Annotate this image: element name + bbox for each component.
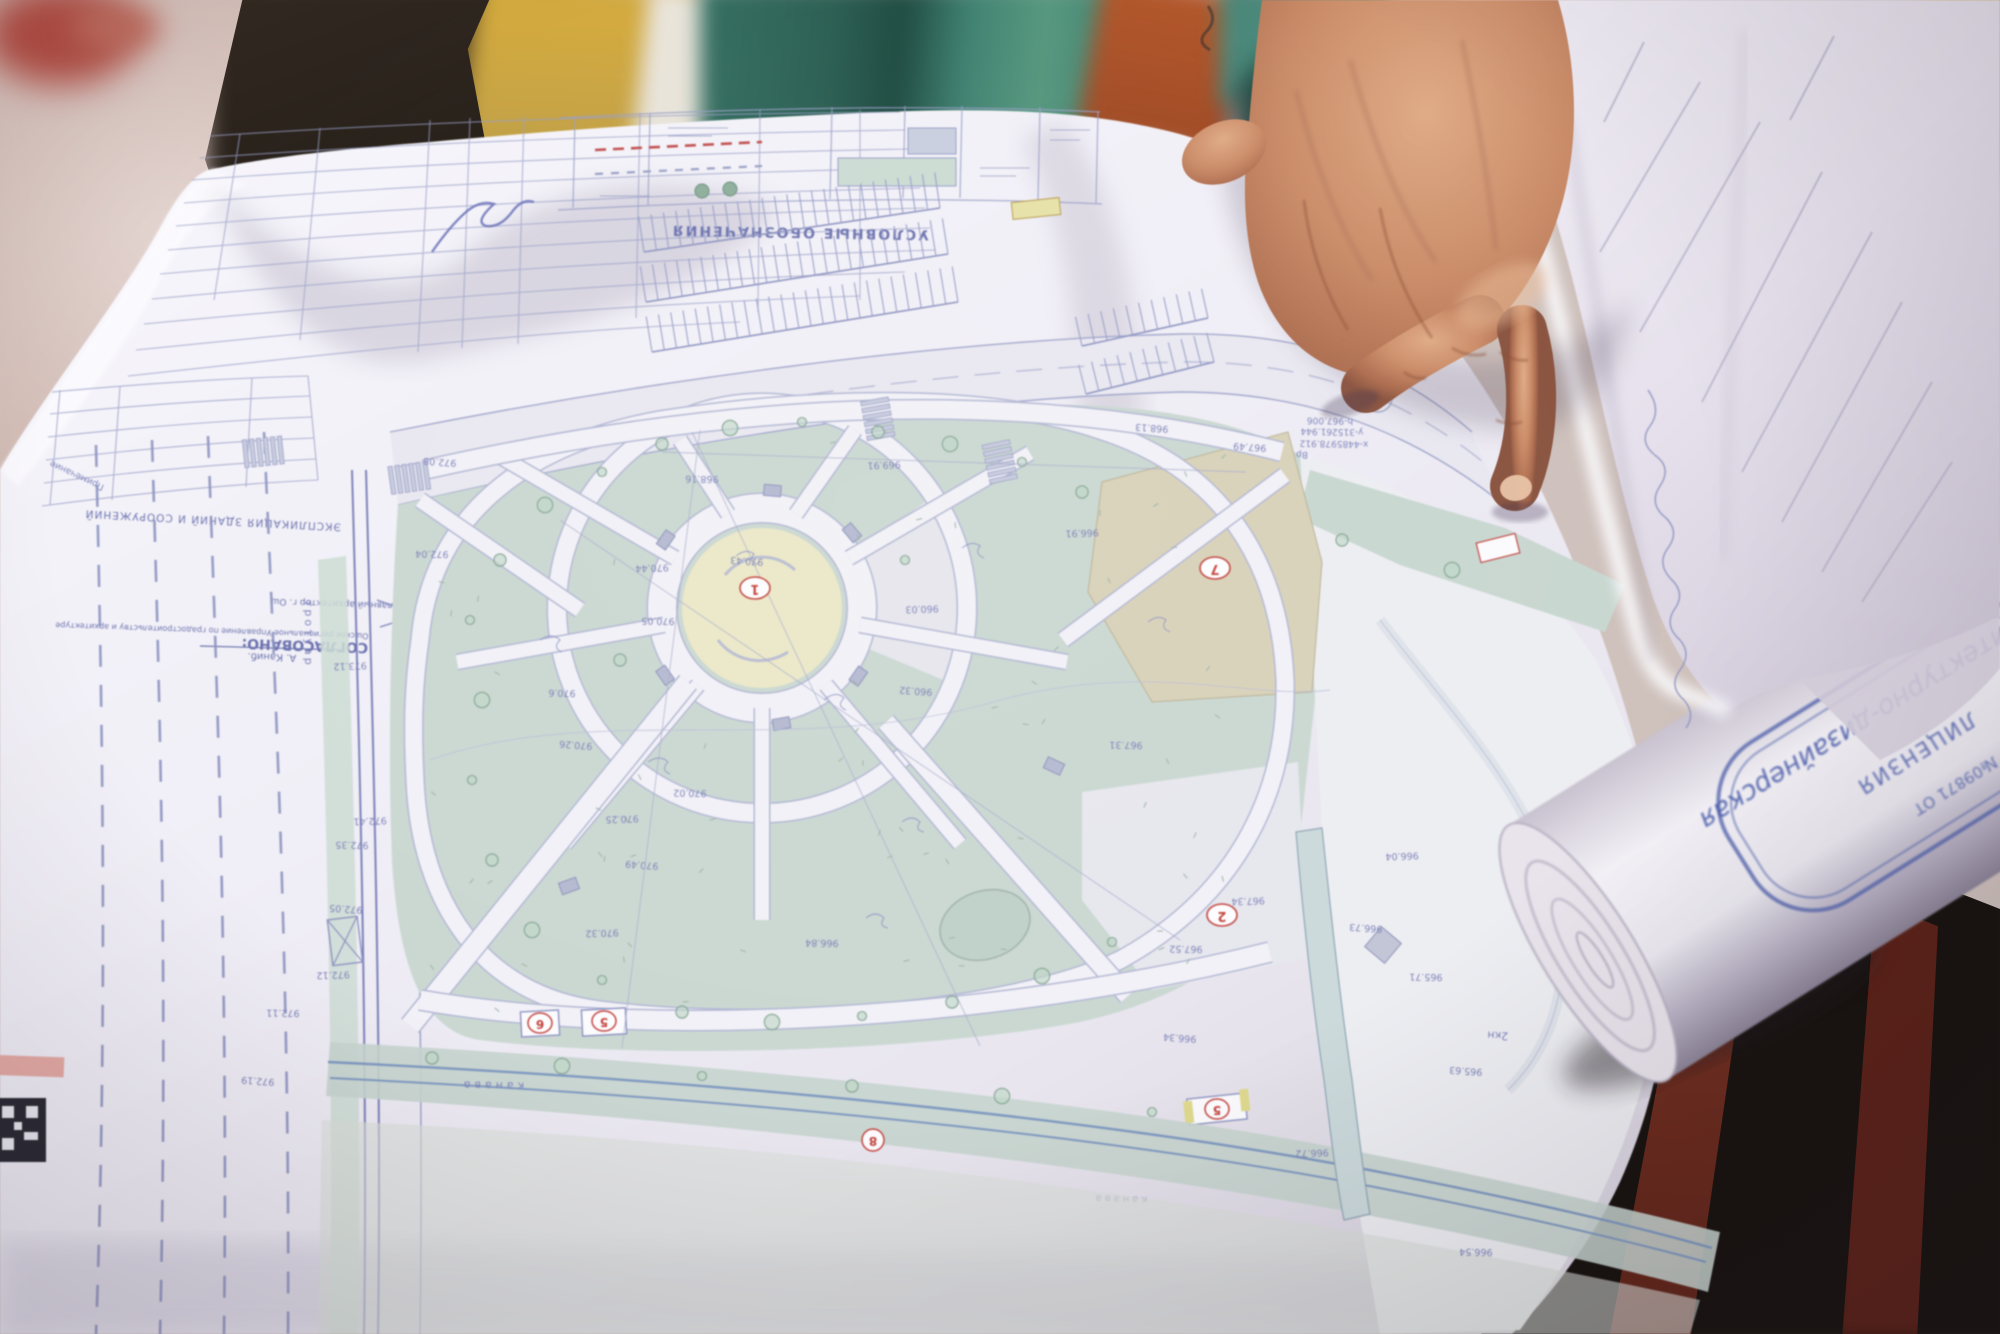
tree-icon (1018, 458, 1027, 467)
tree-icon (676, 1006, 688, 1018)
tree-icon (994, 1088, 1009, 1103)
elevation-label: 967.34 (1231, 894, 1265, 906)
legend-swatch-gray (908, 128, 956, 154)
survey-y: y-315261.944 (1300, 425, 1363, 436)
scene-svg: ЭКСПЛИКАЦИЯ ЗДАНИЙ И СООРУЖЕНИЙ Примечан… (0, 0, 2000, 1334)
tree-icon (858, 1012, 867, 1021)
tree-icon (474, 692, 489, 707)
photo-scene: ЭКСПЛИКАЦИЯ ЗДАНИЙ И СООРУЖЕНИЙ Примечан… (0, 0, 2000, 1334)
grass-tick (1023, 724, 1029, 725)
tree-icon (698, 1072, 707, 1081)
tree-icon (722, 420, 737, 435)
tree-icon (946, 996, 958, 1008)
tree-icon (1108, 938, 1117, 947)
tree-icon (524, 922, 539, 937)
middle-tip-shadow (1492, 502, 1548, 522)
elevation-label: 960.03 (905, 602, 939, 614)
elevation-label: 972.05 (329, 902, 363, 915)
tree-icon (426, 1052, 438, 1064)
elevation-label: 966.73 (1349, 921, 1383, 934)
elevation-label: 968.13 (1135, 421, 1169, 434)
survey-x: x-4485978.912 (1300, 437, 1369, 448)
legend-tree-symbol (695, 184, 709, 198)
tree-icon (764, 1014, 779, 1029)
legend-tree-symbol2 (723, 182, 737, 196)
elevation-label: 970.26 (559, 738, 593, 751)
elevation-label: 972.11 (266, 1007, 299, 1019)
tree-icon (656, 438, 668, 450)
elevation-label: 967.52 (1169, 943, 1202, 955)
elevation-label: 966.04 (1385, 849, 1419, 861)
tree-icon (1148, 1108, 1157, 1117)
elevation-label: 970.44 (635, 561, 669, 573)
hand-tattoo (1202, 6, 1213, 50)
elevation-label: 972.41 (353, 814, 387, 826)
approval-name: А. Каниб. (247, 650, 296, 663)
tree-icon (872, 426, 884, 438)
street-sidewalk-label: тротуар (302, 600, 315, 668)
tree-icon (466, 616, 475, 625)
tree-icon (494, 554, 506, 566)
tree-icon (598, 976, 607, 985)
elevation-label: 966.34 (1163, 1031, 1197, 1044)
elevation-label: 970.43 (730, 554, 764, 567)
elevation-label: 970.6 (548, 687, 575, 698)
grass-tick (1001, 949, 1007, 950)
marker-6: 6 (536, 1017, 544, 1031)
elevation-label: 967.49 (1233, 440, 1267, 453)
center-yellow-circle (682, 528, 842, 688)
building-label-2: 2кн (1487, 1028, 1508, 1042)
elevation-label: 967.31 (1109, 739, 1142, 751)
tree-icon (1336, 534, 1348, 546)
marker-8: 8 (869, 1134, 877, 1148)
qr-code (0, 1098, 46, 1162)
tree-icon (901, 556, 910, 565)
tree-icon (614, 654, 626, 666)
tree-icon (798, 418, 807, 427)
canal-label: канава (460, 1078, 525, 1092)
marker-5: 5 (600, 1015, 608, 1029)
marker-5b: 5 (1213, 1103, 1221, 1117)
elevation-label: 970.02 (673, 787, 706, 799)
survey-br: Вр (1296, 449, 1308, 459)
elevation-label: 970.05 (641, 615, 674, 627)
marker-2: 2 (1217, 908, 1226, 923)
elevation-label: 970.49 (625, 858, 659, 871)
elevation-label: 972.19 (241, 1074, 275, 1087)
elevation-label: 972.08 (423, 455, 457, 468)
tree-icon (598, 468, 607, 477)
elevation-label: 970.25 (605, 812, 639, 824)
elevation-label: 966.84 (805, 937, 838, 949)
tree-icon (554, 1058, 569, 1073)
middle-finger (1515, 330, 1531, 486)
elevation-label: 965.71 (1409, 971, 1442, 983)
tree-icon (1034, 968, 1049, 983)
elevation-label: 965.63 (1449, 1064, 1483, 1077)
marker-1: 1 (750, 581, 759, 596)
elevation-label: 972.04 (415, 548, 448, 560)
grass-tick (604, 856, 605, 862)
tree-icon (486, 854, 498, 866)
elevation-label: 966.54 (1459, 1246, 1492, 1258)
tree-icon (1444, 562, 1459, 577)
elevation-label: 960.32 (899, 684, 933, 697)
elevation-label: 972.35 (335, 839, 368, 851)
marker-7: 7 (1210, 561, 1219, 576)
elevation-label: 973.12 (333, 659, 367, 671)
elevation-label: 966.91 (1065, 526, 1099, 538)
elevation-label: 972.12 (316, 968, 350, 980)
pink-bar (0, 1055, 64, 1077)
grass-tick (1171, 547, 1177, 548)
tree-icon (468, 776, 477, 785)
elevation-label: 970.32 (585, 926, 619, 938)
elevation-label: 966.72 (1295, 1146, 1329, 1158)
tree-icon (846, 1080, 858, 1092)
tree-icon (1076, 486, 1088, 498)
tree-icon (537, 497, 552, 512)
legend-swatch-green (838, 158, 956, 186)
tree-icon (942, 436, 957, 451)
